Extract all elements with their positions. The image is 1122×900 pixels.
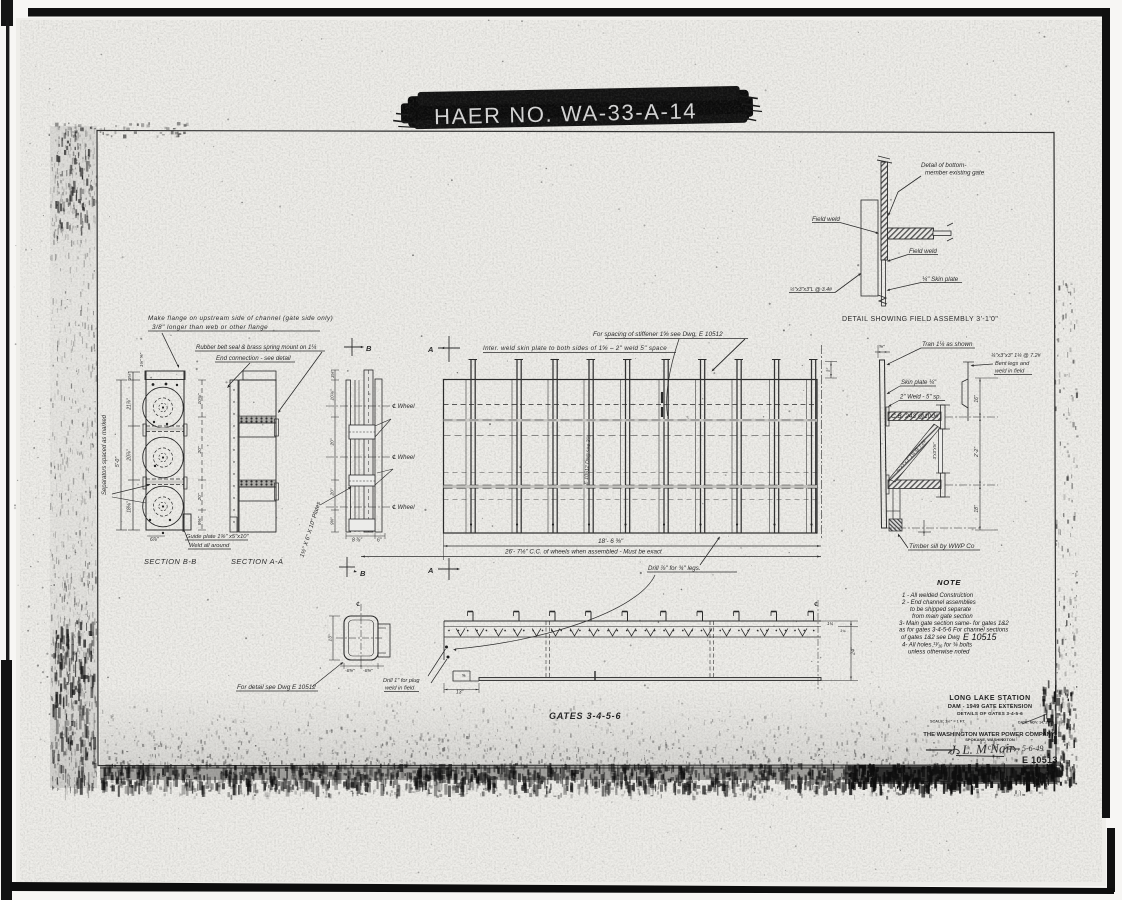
svg-text:8 ⅞": 8 ⅞" <box>352 538 362 544</box>
svg-text:℄: ℄ <box>814 601 818 608</box>
svg-text:¼" Skin plate: ¼" Skin plate <box>922 276 959 283</box>
svg-text:3": 3" <box>826 368 831 373</box>
svg-text:Inter. weld skin plate to: Inter. weld skin plate to both sides of … <box>483 345 667 352</box>
svg-text:9⅝": 9⅝" <box>330 517 335 525</box>
svg-text:weld in field: weld in field <box>995 369 1025 375</box>
svg-text:of gates 1&2 see Dwg: of gates 1&2 see Dwg <box>901 635 960 641</box>
svg-text:NOTE: NOTE <box>937 578 961 587</box>
svg-text:unless otherwise noted: unless otherwise noted <box>908 650 970 656</box>
svg-text:3⅛": 3⅛" <box>330 370 335 378</box>
svg-text:2 - End channel assemblies: 2 - End channel assemblies <box>901 600 976 606</box>
svg-text:Rubber belt seal & brass sprin: Rubber belt seal & brass spring mount on… <box>196 345 316 351</box>
svg-text:℄ Wheel: ℄ Wheel <box>392 403 415 410</box>
svg-text:20⅞": 20⅞" <box>127 449 133 462</box>
svg-text:Drill 1" for plug: Drill 1" for plug <box>383 678 420 684</box>
svg-text:Skin plate ¼": Skin plate ¼" <box>901 380 937 386</box>
svg-text:A: A <box>427 345 433 354</box>
svg-text:SECTION B-B: SECTION B-B <box>144 557 197 566</box>
svg-text:9⅝": 9⅝" <box>197 517 203 526</box>
svg-text:Guide plate 1⅜" x5"x10": Guide plate 1⅜" x5"x10" <box>186 534 250 540</box>
svg-text:10¾": 10¾" <box>197 393 203 404</box>
svg-text:20": 20" <box>330 488 336 496</box>
svg-text:18⅛": 18⅛" <box>127 501 133 513</box>
svg-text:2" Weld - 5" sp.: 2" Weld - 5" sp. <box>899 395 941 401</box>
svg-text:26'- 7⅛" C.C. of wheels whe: 26'- 7⅛" C.C. of wheels when assembled -… <box>504 549 662 556</box>
svg-text:Tran 1¼ as shown: Tran 1¼ as shown <box>922 341 973 348</box>
svg-text:3- Main gate section same- f: 3- Main gate section same- for gates 1&2 <box>899 621 1009 627</box>
svg-text:20": 20" <box>330 438 336 446</box>
svg-text:16": 16" <box>974 395 980 403</box>
svg-text:Make flange on upstream sid: Make flange on upstream side of channel … <box>148 315 333 322</box>
svg-text:½"x3"x3"L @ 3.4#: ½"x3"x3"L @ 3.4# <box>790 286 832 293</box>
svg-text:Field weld: Field weld <box>909 248 937 255</box>
svg-text:End connection - see detail: End connection - see detail <box>216 355 291 362</box>
svg-text:1⅛" ⅝": 1⅛" ⅝" <box>139 353 144 368</box>
svg-text:1¼: 1¼ <box>840 628 846 633</box>
svg-text:member existing gate: member existing gate <box>925 170 985 177</box>
svg-text:·6⅝": ·6⅝" <box>345 668 355 673</box>
svg-text:20": 20" <box>197 446 203 454</box>
svg-text:13": 13" <box>328 634 334 641</box>
svg-text:10¾": 10¾" <box>330 389 336 400</box>
svg-text:Separators spaced as marked: Separators spaced as marked <box>102 414 108 495</box>
svg-text:18'- 6 ⅜": 18'- 6 ⅜" <box>598 538 624 545</box>
svg-text:⅝: ⅝ <box>462 673 466 678</box>
svg-text:C.B. 243 @100#: C.B. 243 @100# <box>891 413 939 420</box>
svg-text:B: B <box>360 569 366 578</box>
svg-text:3⅛": 3⅛" <box>127 372 132 380</box>
svg-text:Weld all around: Weld all around <box>189 543 230 549</box>
svg-text:18": 18" <box>974 505 980 513</box>
svg-text:6⅞": 6⅞" <box>150 537 159 543</box>
svg-text:B: B <box>366 344 372 353</box>
svg-text:Drill ⅞" for ¾" legs.: Drill ⅞" for ¾" legs. <box>648 565 701 572</box>
svg-text:A: A <box>427 566 433 575</box>
svg-text:¼"x3"x3" 1¼ @ 7.2#: ¼"x3"x3" 1¼ @ 7.2# <box>991 353 1042 359</box>
svg-text:Field weld: Field weld <box>812 216 840 223</box>
svg-text:℄ Wheel: ℄ Wheel <box>392 504 415 511</box>
svg-text:24": 24" <box>851 646 857 656</box>
svg-text:4- All holes ¹³⁄₁₆ for ¾ bo: 4- All holes ¹³⁄₁₆ for ¾ bolts <box>902 643 972 649</box>
svg-text:·6⅝": ·6⅝" <box>363 668 373 673</box>
svg-text:E 10515: E 10515 <box>963 632 998 642</box>
svg-text:3"x3"x⅜": 3"x3"x⅜" <box>932 442 937 459</box>
svg-text:5'-0": 5'-0" <box>115 456 121 467</box>
svg-text:2'-2": 2'-2" <box>974 447 980 458</box>
svg-text:℄ Wheel: ℄ Wheel <box>392 454 415 461</box>
svg-text:Detail of bottom-: Detail of bottom- <box>921 162 966 169</box>
svg-text:to be shipped separate: to be shipped separate <box>910 607 972 613</box>
svg-text:3/8" longer than web or: 3/8" longer than web or other flange <box>152 324 268 331</box>
svg-text:SECTION A-A: SECTION A-A <box>231 557 283 566</box>
svg-text:21⅞": 21⅞" <box>127 398 133 411</box>
svg-text:6": 6" <box>377 538 382 544</box>
svg-text:For spacing of stiffener: For spacing of stiffener 1⅝ see Dwg, E 1… <box>593 331 723 338</box>
svg-text:Timber sill by WWP Co: Timber sill by WWP Co <box>909 543 975 550</box>
svg-text:℄: ℄ <box>356 601 360 608</box>
svg-text:Bent legs and: Bent legs and <box>995 361 1030 367</box>
svg-text:DETAIL SHOWING FIELD ASSEMB: DETAIL SHOWING FIELD ASSEMBLY 3'-1'0" <box>842 316 998 323</box>
svg-text:1¼: 1¼ <box>827 621 833 626</box>
svg-text:For detail see Dwg E 10512: For detail see Dwg E 10512 <box>237 684 316 691</box>
svg-text:⅝": ⅝" <box>879 344 885 350</box>
svg-text:20": 20" <box>197 493 203 501</box>
svg-text:from main gate section: from main gate section <box>912 614 973 620</box>
svg-text:1 - All welded Construction: 1 - All welded Construction <box>902 593 974 599</box>
